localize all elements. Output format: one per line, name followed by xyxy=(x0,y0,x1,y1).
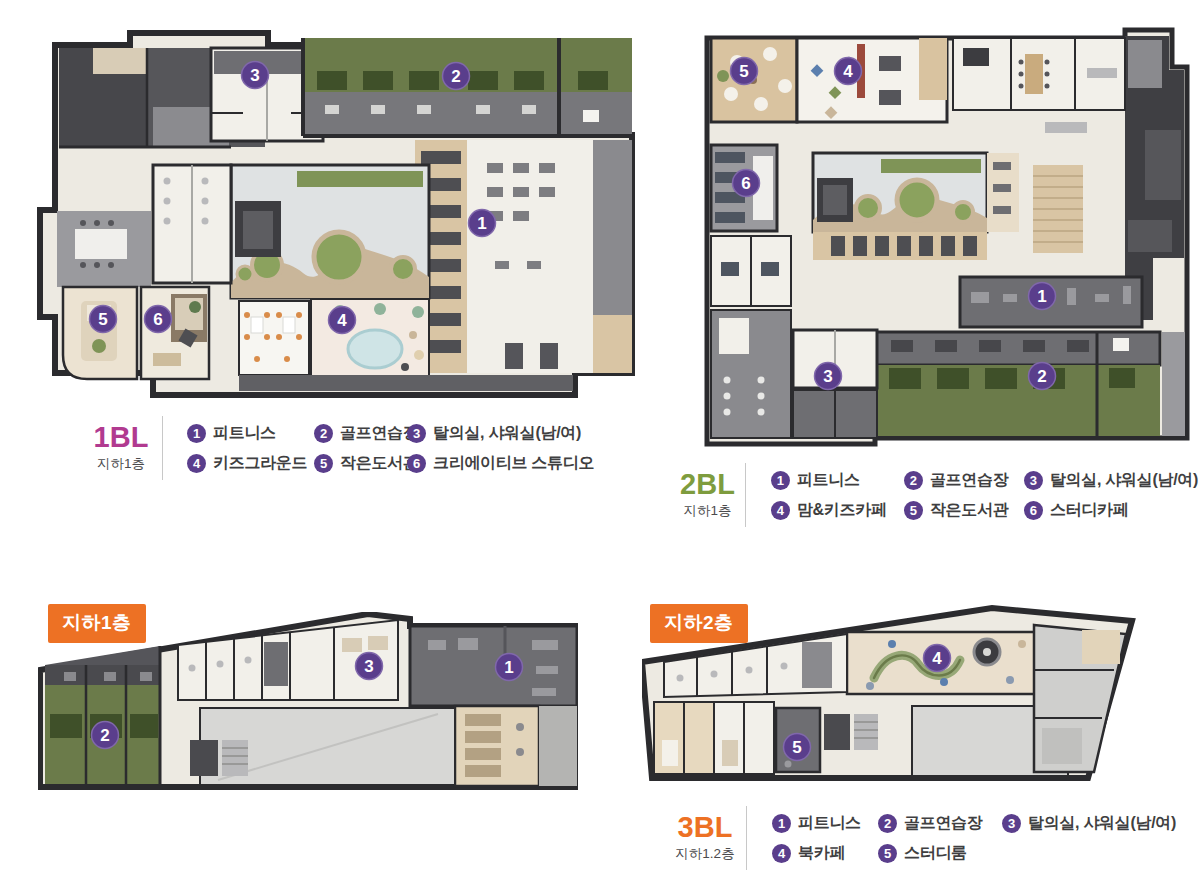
marker-1bl-3: 3 xyxy=(242,62,269,89)
num-badge: 4 xyxy=(187,454,206,473)
courtyard-zone xyxy=(813,153,987,232)
fitness-zone xyxy=(410,626,577,706)
num-badge: 1 xyxy=(187,424,206,443)
svg-text:5: 5 xyxy=(792,738,801,757)
legend-2bl: 2BL 지하1층 1 피트니스 2 골프연습장 3 탈의실, 샤워실(남/여) … xyxy=(678,460,1198,530)
gym-strip xyxy=(987,153,1019,232)
svg-text:1: 1 xyxy=(1037,287,1046,306)
legend-2bl-items: 1 피트니스 2 골프연습장 3 탈의실, 샤워실(남/여) 4 맘&키즈카페 … xyxy=(746,460,1198,530)
legend-item-fitness: 1 피트니스 xyxy=(187,423,314,444)
svg-text:6: 6 xyxy=(153,310,162,329)
legend-2bl-subtitle: 지하1층 xyxy=(684,502,732,520)
svg-text:1: 1 xyxy=(504,658,513,677)
num-badge: 4 xyxy=(772,844,791,863)
legend-item-study-cafe: 6 스터디카페 xyxy=(1024,500,1198,521)
num-badge: 2 xyxy=(314,424,333,443)
svg-text:4: 4 xyxy=(337,311,347,330)
legend-item-book-cafe: 4 북카페 xyxy=(772,843,878,864)
num-badge: 1 xyxy=(771,471,790,490)
legend-2bl-title-box: 2BL 지하1층 xyxy=(678,460,737,530)
marker-b2-5: 5 xyxy=(784,734,811,761)
studio-zone xyxy=(141,287,209,379)
floor-badge-b1: 지하1층 xyxy=(48,604,146,643)
svg-text:6: 6 xyxy=(741,174,750,193)
washrooms-zone xyxy=(711,310,791,438)
svg-text:2: 2 xyxy=(451,67,460,86)
fitness-zone xyxy=(415,140,632,373)
corridor-strip xyxy=(239,375,573,391)
svg-text:3: 3 xyxy=(364,657,373,676)
marker-1bl-5: 5 xyxy=(90,306,117,333)
legend-item-golf: 2 골프연습장 xyxy=(878,813,1002,834)
kids-pool xyxy=(348,330,402,368)
marker-2bl-3: 3 xyxy=(815,363,842,390)
sauna-zone xyxy=(455,706,577,786)
num-badge: 3 xyxy=(407,424,426,443)
marker-2bl-2: 2 xyxy=(1029,363,1056,390)
courtyard-zone xyxy=(231,165,429,298)
floor-badge-b2: 지하2층 xyxy=(650,604,748,643)
num-badge: 3 xyxy=(1002,814,1021,833)
marker-2bl-5: 5 xyxy=(731,58,758,85)
legend-1bl-title: 1BL xyxy=(94,423,149,453)
floorplan-1bl: 1 2 3 4 5 6 xyxy=(35,15,640,405)
marker-2bl-4: 4 xyxy=(835,58,862,85)
num-badge: 6 xyxy=(407,454,426,473)
num-badge: 6 xyxy=(1024,501,1043,520)
num-badge: 3 xyxy=(1024,471,1043,490)
num-badge: 2 xyxy=(904,471,923,490)
svg-text:3: 3 xyxy=(250,66,259,85)
kids-cafe-zone xyxy=(797,38,947,122)
marker-1bl-6: 6 xyxy=(145,306,172,333)
svg-text:4: 4 xyxy=(932,649,942,668)
marker-b2-4: 4 xyxy=(924,645,951,672)
svg-text:2: 2 xyxy=(100,726,109,745)
num-badge: 2 xyxy=(878,814,897,833)
elevator-core xyxy=(824,714,850,750)
golf-range-zone xyxy=(45,646,160,784)
svg-text:2: 2 xyxy=(1037,367,1046,386)
meeting-room-zone xyxy=(57,211,151,287)
legend-3bl-subtitle: 지하1.2층 xyxy=(675,845,734,863)
elevator-core xyxy=(190,740,218,776)
golf-range-zone xyxy=(875,332,1160,436)
legend-item-golf: 2 골프연습장 xyxy=(314,423,407,444)
num-badge: 5 xyxy=(314,454,333,473)
svg-text:1: 1 xyxy=(477,214,486,233)
legend-item-library: 5 작은도서관 xyxy=(314,453,407,474)
marker-1bl-1: 1 xyxy=(469,210,496,237)
num-badge: 5 xyxy=(904,501,923,520)
library-zone xyxy=(63,287,137,379)
legend-item-locker: 3 탈의실, 샤워실(남/여) xyxy=(1002,813,1176,834)
legend-3bl-title-box: 3BL 지하1.2층 xyxy=(672,803,738,873)
right-corridor xyxy=(1162,332,1185,436)
marker-b1-2: 2 xyxy=(92,722,119,749)
lounger-band xyxy=(813,232,987,260)
legend-1bl-items: 1 피트니스 2 골프연습장 3 탈의실, 샤워실(남/여) 4 키즈그라운드 … xyxy=(163,413,594,483)
legend-item-golf: 2 골프연습장 xyxy=(904,470,1024,491)
lower-left-rooms xyxy=(654,702,774,774)
kids-ground-zone xyxy=(311,299,429,379)
legend-item-fitness: 1 피트니스 xyxy=(772,813,878,834)
legend-item-study-room: 5 스터디룸 xyxy=(878,843,1002,864)
legend-1bl-title-box: 1BL 지하1층 xyxy=(88,413,154,483)
legend-1bl-subtitle: 지하1층 xyxy=(97,455,145,473)
svg-text:4: 4 xyxy=(843,62,853,81)
legend-1bl: 1BL 지하1층 1 피트니스 2 골프연습장 3 탈의실, 샤워실(남/여) … xyxy=(88,413,638,483)
legend-3bl-title: 3BL xyxy=(678,813,733,843)
right-wing-rooms xyxy=(1034,625,1126,772)
legend-3bl-items: 1 피트니스 2 골프연습장 3 탈의실, 샤워실(남/여) 4 북카페 5 스… xyxy=(747,803,1176,873)
legend-item-library: 5 작은도서관 xyxy=(904,500,1024,521)
marker-2bl-6: 6 xyxy=(733,170,760,197)
page: 1 2 3 4 5 6 xyxy=(0,0,1200,892)
ramp-core-zone xyxy=(190,708,455,785)
legend-3bl: 3BL 지하1.2층 1 피트니스 2 골프연습장 3 탈의실, 샤워실(남/여… xyxy=(672,803,1197,873)
legend-item-studio: 6 크리에이티브 스튜디오 xyxy=(407,453,594,474)
legend-2bl-title: 2BL xyxy=(680,470,735,500)
marker-1bl-2: 2 xyxy=(443,63,470,90)
washroom-zone xyxy=(153,165,231,283)
marker-2bl-1: 1 xyxy=(1029,283,1056,310)
small-meeting-rooms xyxy=(711,236,791,306)
num-badge: 5 xyxy=(878,844,897,863)
golf-range-zone xyxy=(303,38,632,136)
floorplan-2bl: 1 2 3 4 5 6 xyxy=(695,10,1195,455)
legend-item-kidsground: 4 키즈그라운드 xyxy=(187,453,314,474)
marker-1bl-4: 4 xyxy=(329,307,356,334)
marker-b1-3: 3 xyxy=(356,653,383,680)
tables-zone xyxy=(239,301,309,375)
legend-item-fitness: 1 피트니스 xyxy=(771,470,904,491)
num-badge: 1 xyxy=(772,814,791,833)
stairs-zone xyxy=(1033,165,1083,253)
svg-text:5: 5 xyxy=(739,62,748,81)
legend-item-momkids-cafe: 4 맘&키즈카페 xyxy=(771,500,904,521)
svg-text:5: 5 xyxy=(98,310,107,329)
legend-item-locker: 3 탈의실, 샤워실(남/여) xyxy=(1024,470,1198,491)
legend-item-locker: 3 탈의실, 샤워실(남/여) xyxy=(407,423,594,444)
marker-b1-1: 1 xyxy=(496,654,523,681)
num-badge: 4 xyxy=(771,501,790,520)
svg-text:3: 3 xyxy=(823,367,832,386)
